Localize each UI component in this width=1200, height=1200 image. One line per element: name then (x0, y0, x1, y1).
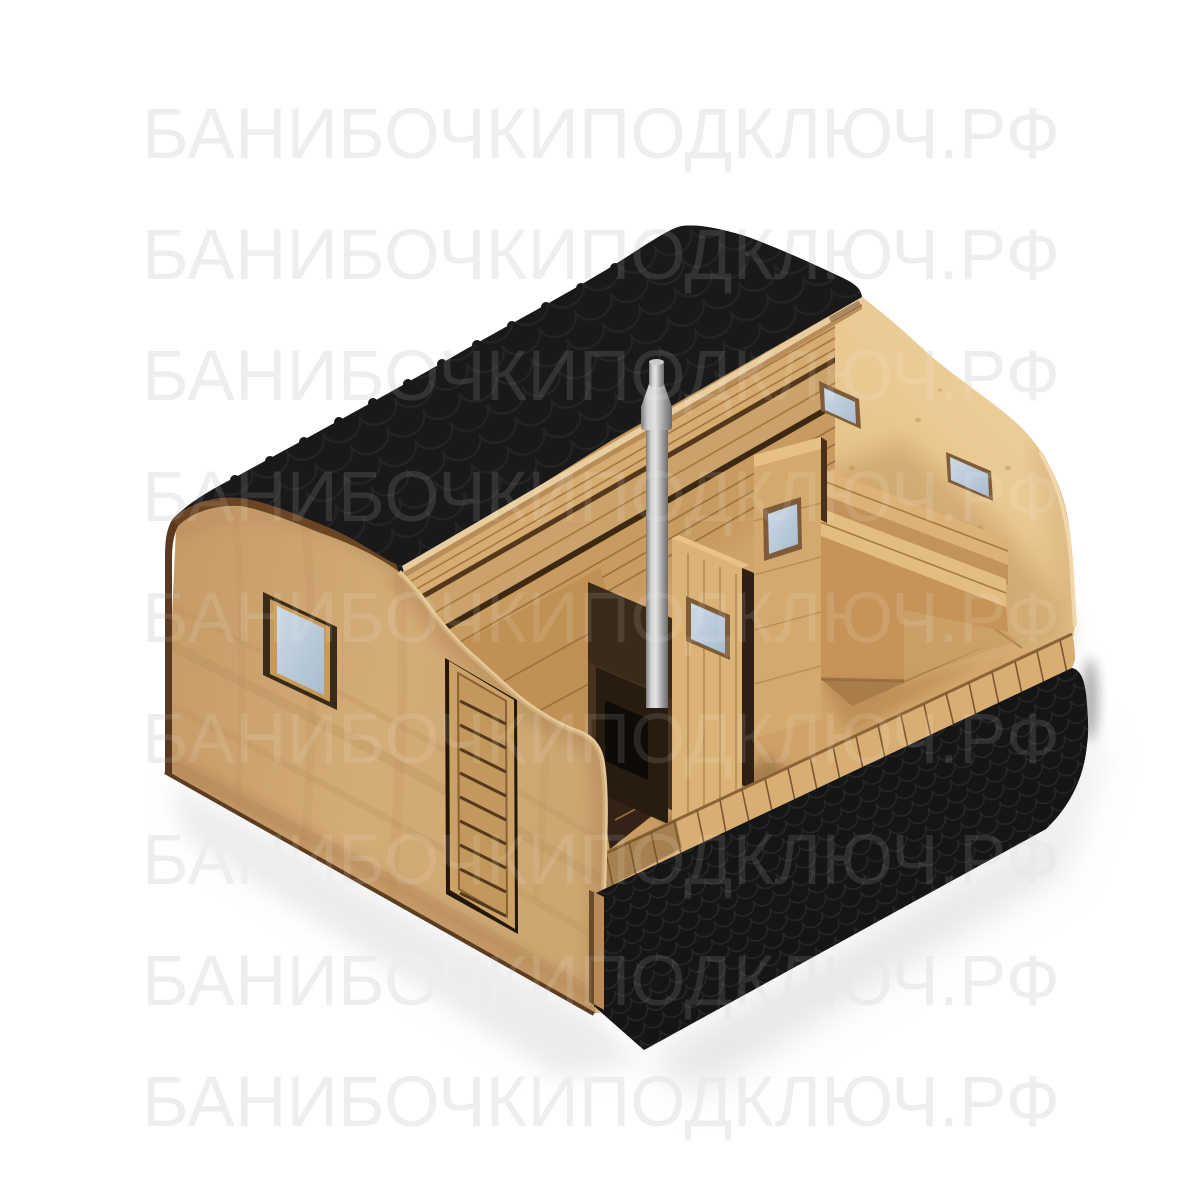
svg-text:БАНИБОЧКИПОДКЛЮЧ.РФ: БАНИБОЧКИПОДКЛЮЧ.РФ (142, 95, 1060, 174)
svg-text:БАНИБОЧКИПОДКЛЮЧ.РФ: БАНИБОЧКИПОДКЛЮЧ.РФ (142, 942, 1060, 1021)
svg-text:БАНИБОЧКИПОДКЛЮЧ.РФ: БАНИБОЧКИПОДКЛЮЧ.РФ (142, 821, 1060, 900)
svg-text:БАНИБОЧКИПОДКЛЮЧ.РФ: БАНИБОЧКИПОДКЛЮЧ.РФ (142, 700, 1060, 779)
svg-text:БАНИБОЧКИПОДКЛЮЧ.РФ: БАНИБОЧКИПОДКЛЮЧ.РФ (142, 216, 1060, 295)
svg-text:БАНИБОЧКИПОДКЛЮЧ.РФ: БАНИБОЧКИПОДКЛЮЧ.РФ (142, 1063, 1060, 1142)
svg-text:БАНИБОЧКИПОДКЛЮЧ.РФ: БАНИБОЧКИПОДКЛЮЧ.РФ (142, 337, 1060, 416)
svg-text:БАНИБОЧКИПОДКЛЮЧ.РФ: БАНИБОЧКИПОДКЛЮЧ.РФ (142, 579, 1060, 658)
svg-text:БАНИБОЧКИПОДКЛЮЧ.РФ: БАНИБОЧКИПОДКЛЮЧ.РФ (142, 458, 1060, 537)
